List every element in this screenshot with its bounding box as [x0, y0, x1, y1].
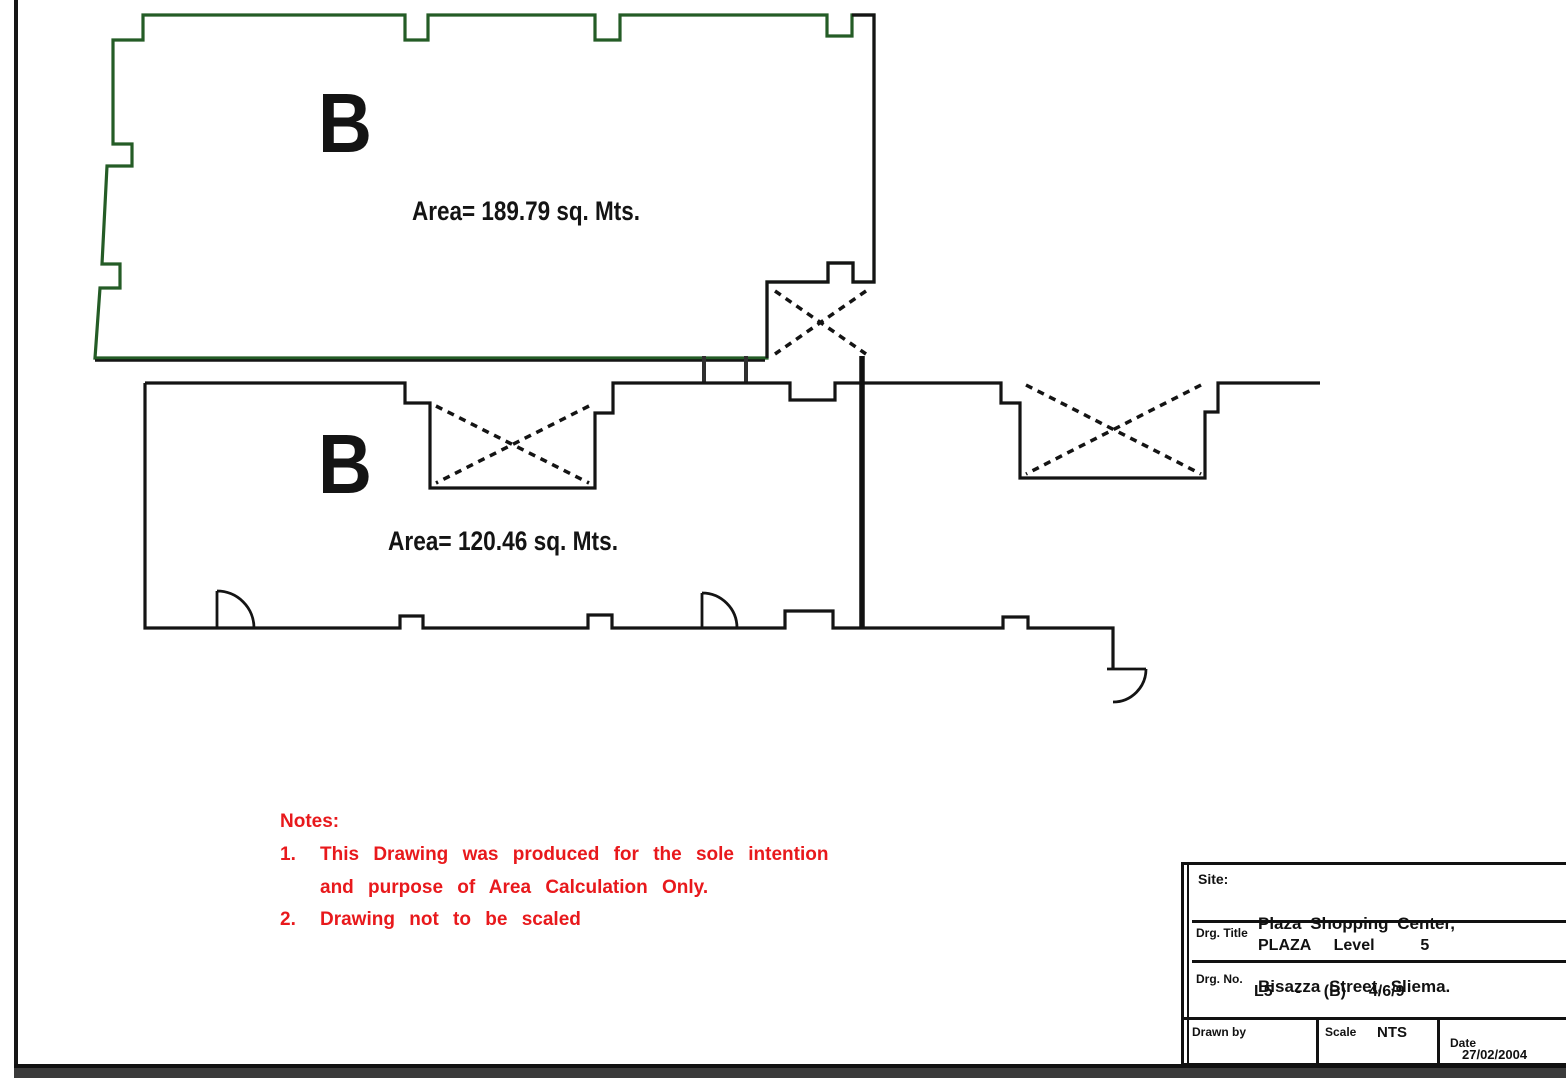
title-block-site-row: Site: Plaza Shopping Center, Bisazza Str… [1192, 865, 1566, 920]
void-cross-icon [436, 406, 589, 483]
drawn-by-cell: Drawn by [1184, 1020, 1316, 1063]
unit-b-upper-right-wall [767, 15, 874, 358]
drawing-sheet: B Area= 189.79 sq. Mts. B Area= 120.46 s… [0, 0, 1566, 1080]
drg-no-value: L5 - (B) 4/6/9 [1254, 983, 1404, 1001]
scale-value: NTS [1377, 1024, 1407, 1041]
sheet-bottom-bar [14, 1068, 1566, 1078]
notes-heading: Notes: [280, 812, 339, 831]
unit-b-upper-outline [95, 15, 874, 358]
note-2-line-1: Drawing not to be scaled [320, 909, 581, 930]
note-2-number: 2. [280, 910, 320, 929]
door-swing-icon [217, 591, 254, 628]
note-item-2: 2.Drawing not to be scaled [280, 910, 581, 929]
unit-b-lower-area-text: Area= 120.46 sq. Mts. [388, 526, 618, 556]
note-item-1: 1.This Drawing was produced for the sole… [280, 845, 828, 864]
drg-title-label: Drg. Title [1196, 926, 1248, 940]
unit-b-lower-label: B [318, 417, 372, 511]
void-cross-icon [775, 291, 866, 354]
title-block-drg-title-row: Drg. Title PLAZA Level 5 [1192, 920, 1566, 960]
unit-b-upper-label: B [318, 76, 372, 170]
date-cell: Date 27/02/2004 [1437, 1020, 1566, 1063]
scale-cell: Scale NTS [1316, 1020, 1440, 1063]
scale-label: Scale [1325, 1025, 1356, 1039]
unit-b-upper-area-text: Area= 189.79 sq. Mts. [412, 196, 640, 226]
title-block-bottom-row: Drawn by Scale NTS Date 27/02/2004 [1184, 1017, 1566, 1063]
title-block: Site: Plaza Shopping Center, Bisazza Str… [1181, 862, 1566, 1066]
note-1-line-2: and purpose of Area Calculation Only. [280, 878, 708, 897]
door-swing-icon [702, 593, 737, 628]
note-1-number: 1. [280, 845, 320, 864]
drg-no-label: Drg. No. [1196, 972, 1243, 986]
note-1-line-1: This Drawing was produced for the sole i… [320, 844, 828, 865]
title-block-drg-no-row: Drg. No. L5 - (B) 4/6/9 [1192, 960, 1566, 1017]
lower-bottom-wall-outline [145, 383, 1113, 668]
drg-title-value: PLAZA Level 5 [1258, 937, 1429, 955]
date-value: 27/02/2004 [1462, 1047, 1527, 1062]
void-cross-icon [1026, 385, 1201, 474]
site-label: Site: [1198, 871, 1228, 887]
door-swing-icon [1107, 669, 1146, 702]
drawn-by-label: Drawn by [1192, 1025, 1246, 1039]
